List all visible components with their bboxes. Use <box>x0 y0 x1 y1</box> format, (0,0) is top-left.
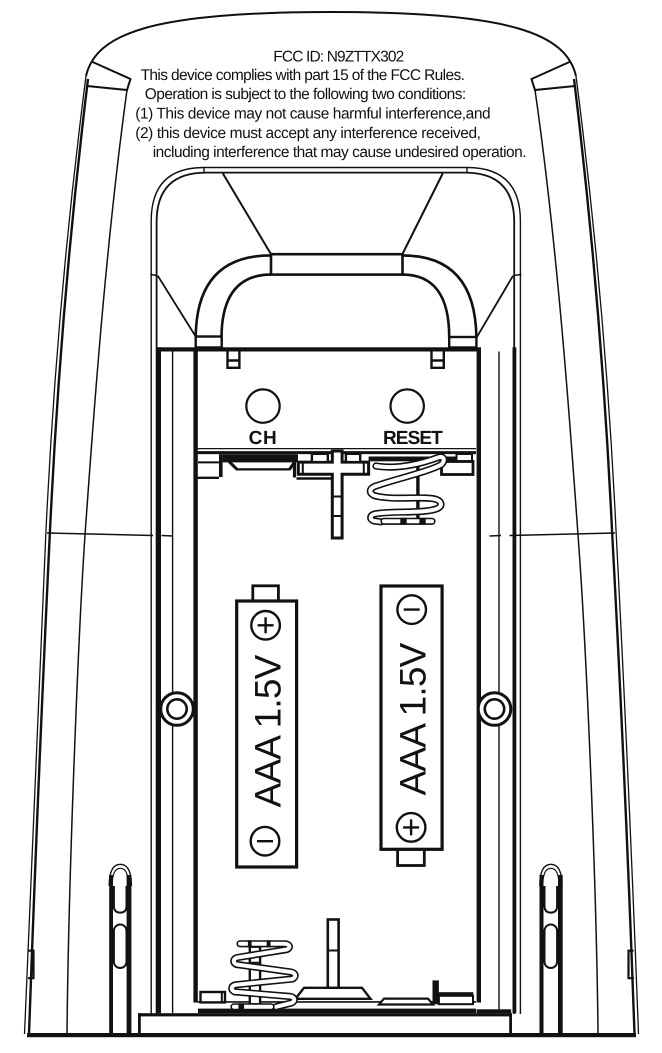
svg-text:This device complies with part: This device complies with part 15 of the… <box>141 67 465 84</box>
svg-text:RESET: RESET <box>383 428 443 449</box>
svg-text:AAA 1.5V: AAA 1.5V <box>248 654 289 807</box>
svg-text:AAA 1.5V: AAA 1.5V <box>393 642 434 795</box>
svg-text:(1) This device may not cause: (1) This device may not cause harmful in… <box>135 106 490 123</box>
svg-text:Operation is subject to the fo: Operation is subject to the following tw… <box>145 86 466 103</box>
svg-text:CH: CH <box>249 428 278 449</box>
svg-text:FCC ID: N9ZTTX302: FCC ID: N9ZTTX302 <box>273 49 403 66</box>
svg-text:(2) this device must accept an: (2) this device must accept any interfer… <box>135 125 480 142</box>
svg-text:including interference that ma: including interference that may cause un… <box>153 144 526 161</box>
